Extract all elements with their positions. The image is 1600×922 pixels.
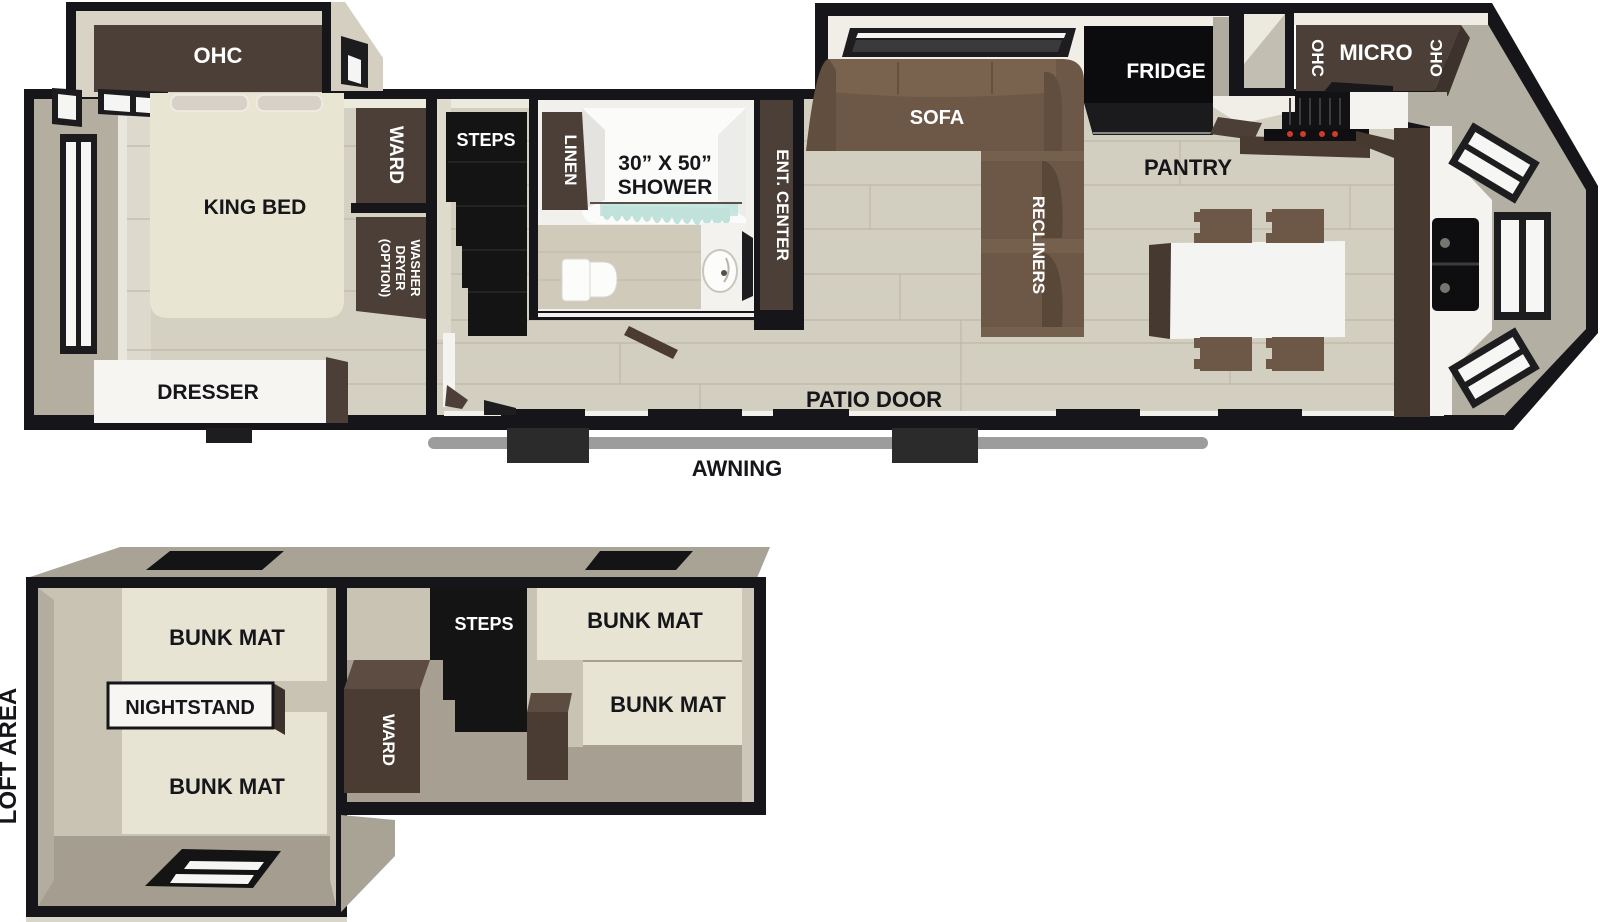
svg-text:BUNK MAT: BUNK MAT (587, 608, 703, 633)
svg-text:BUNK MAT: BUNK MAT (169, 625, 285, 650)
svg-text:ENT. CENTER: ENT. CENTER (773, 149, 792, 260)
svg-text:OHC: OHC (194, 43, 243, 68)
svg-text:SOFA: SOFA (910, 107, 964, 129)
svg-text:BUNK MAT: BUNK MAT (169, 774, 285, 799)
svg-text:PATIO DOOR: PATIO DOOR (806, 387, 942, 412)
svg-text:DRYER: DRYER (393, 245, 408, 291)
svg-text:(OPTION): (OPTION) (378, 239, 393, 298)
svg-text:PANTRY: PANTRY (1144, 155, 1232, 180)
svg-text:WASHER: WASHER (408, 239, 423, 297)
svg-text:SHOWER: SHOWER (618, 176, 713, 199)
svg-text:LINEN: LINEN (561, 135, 580, 186)
svg-text:AWNING: AWNING (692, 456, 782, 481)
svg-text:OHC: OHC (1308, 39, 1327, 77)
svg-text:WARD: WARD (385, 126, 406, 184)
svg-text:LOFT AREA: LOFT AREA (0, 688, 22, 824)
svg-text:KING BED: KING BED (204, 196, 307, 219)
svg-text:30” X 50”: 30” X 50” (618, 152, 711, 175)
svg-text:NIGHTSTAND: NIGHTSTAND (125, 697, 255, 719)
svg-text:DRESSER: DRESSER (157, 381, 259, 404)
svg-text:STEPS: STEPS (456, 130, 515, 150)
svg-text:FRIDGE: FRIDGE (1126, 60, 1205, 83)
svg-text:MICRO: MICRO (1339, 40, 1412, 65)
svg-text:STEPS: STEPS (454, 614, 513, 634)
svg-text:BUNK MAT: BUNK MAT (610, 692, 726, 717)
svg-text:RECLINERS: RECLINERS (1029, 196, 1048, 294)
svg-text:OHC: OHC (1427, 39, 1446, 77)
svg-text:WARD: WARD (379, 714, 398, 766)
